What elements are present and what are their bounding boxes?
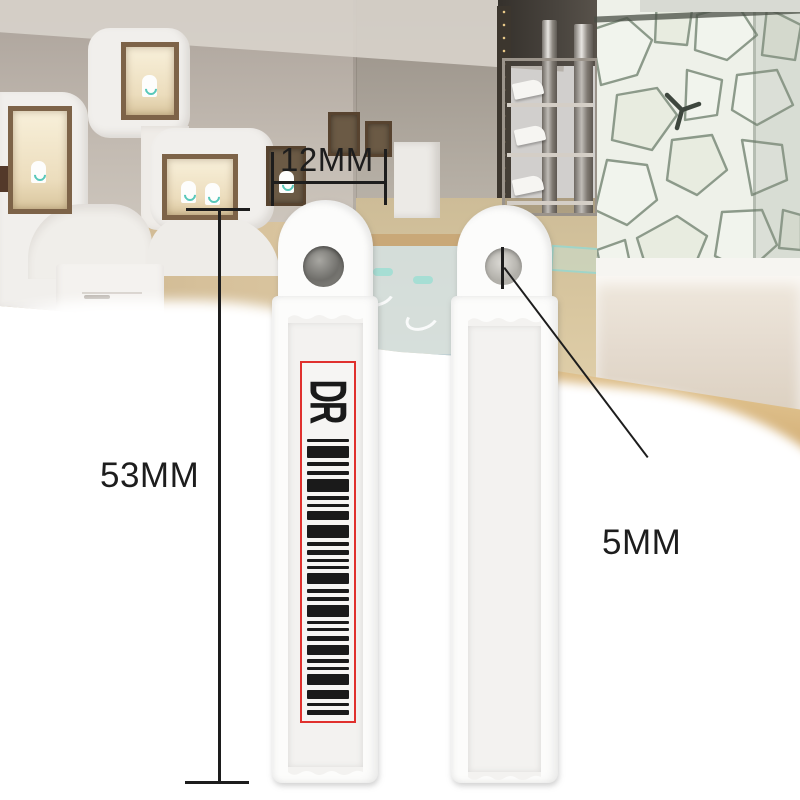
width-dimension-tick [384,149,387,205]
hang-hole [303,246,344,287]
tower-shelf [507,153,593,157]
barcode-highlight-box: DR [300,361,356,723]
barcode-text: DR [302,380,354,423]
security-label-front: DR [272,200,378,783]
display-tower [502,58,598,216]
necklace-bust [31,161,46,183]
display-item [514,124,547,146]
display-pedestal [394,142,440,218]
tag-label-area: DR [288,322,363,768]
jewelry-item [413,276,433,284]
label-wave-edge [288,767,363,779]
hole-dimension-label: 5MM [602,523,681,563]
drawer-handle [84,295,110,299]
barcode-text-wrap: DR [302,365,354,437]
barcode-bars [307,439,349,715]
label-wave-edge [468,314,541,326]
height-dimension-tick [186,208,250,211]
label-wave-edge [468,772,541,784]
necklace-bust [181,181,196,203]
height-dimension-label: 53MM [100,456,199,496]
display-item [512,174,545,196]
display-item [512,78,545,100]
top-corner-light [640,0,800,12]
tag-label-area [468,325,541,773]
width-dimension-tick [271,152,274,206]
etched-decor [402,303,441,335]
product-image: DR 12MM 53MM [0,0,800,800]
necklace-bust [205,183,220,205]
width-dimension-line [272,181,386,184]
height-dimension-line [218,210,221,784]
jewelry-display-niche [121,42,179,120]
height-dimension-tick [185,781,249,784]
necklace-bust [142,75,157,97]
jewelry-display-niche [8,106,72,214]
security-label-back [451,205,558,783]
label-wave-edge [288,311,363,323]
tower-shelf [507,103,593,107]
width-dimension-label: 12MM [280,141,374,179]
glass-side-shade [756,0,800,278]
